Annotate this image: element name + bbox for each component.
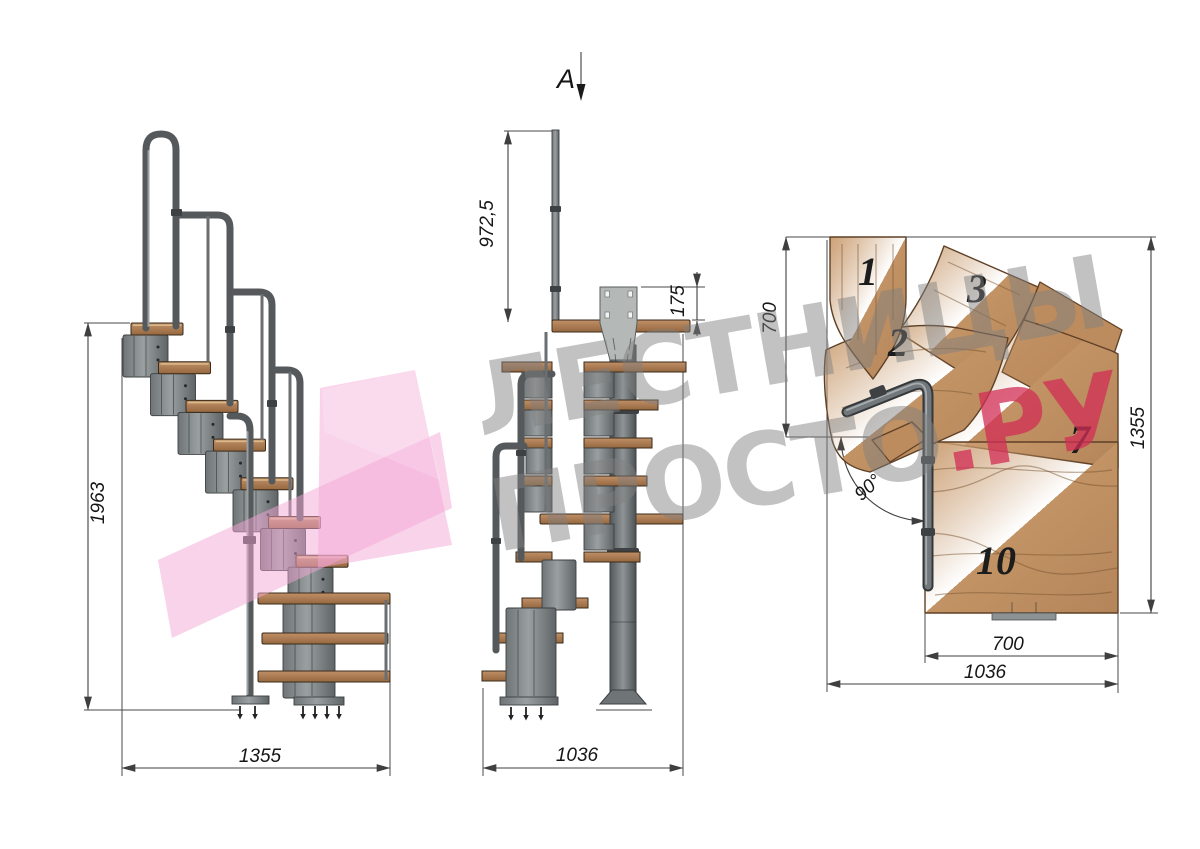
dim-plan-total-width: 1036 [964, 662, 1007, 683]
section-label: A [555, 64, 575, 94]
handrail-hoop [146, 134, 176, 328]
dim-plan-total-depth: 1355 [1128, 406, 1149, 449]
dim-front-total-width: 1036 [556, 745, 599, 766]
drawing-canvas: 1963 1355 [0, 0, 1200, 849]
dim-front-post-height: 972,5 [477, 200, 498, 248]
dim-plan-bottom-run: 700 [992, 634, 1024, 655]
section-marker: A [555, 52, 586, 101]
section-arrow-icon [577, 84, 586, 101]
staircase-technical-drawing: 1963 1355 [0, 0, 1200, 849]
dim-side-total-height: 1963 [88, 481, 109, 524]
dim-side-total-depth: 1355 [239, 746, 282, 767]
step-number-10: 10 [976, 538, 1016, 583]
